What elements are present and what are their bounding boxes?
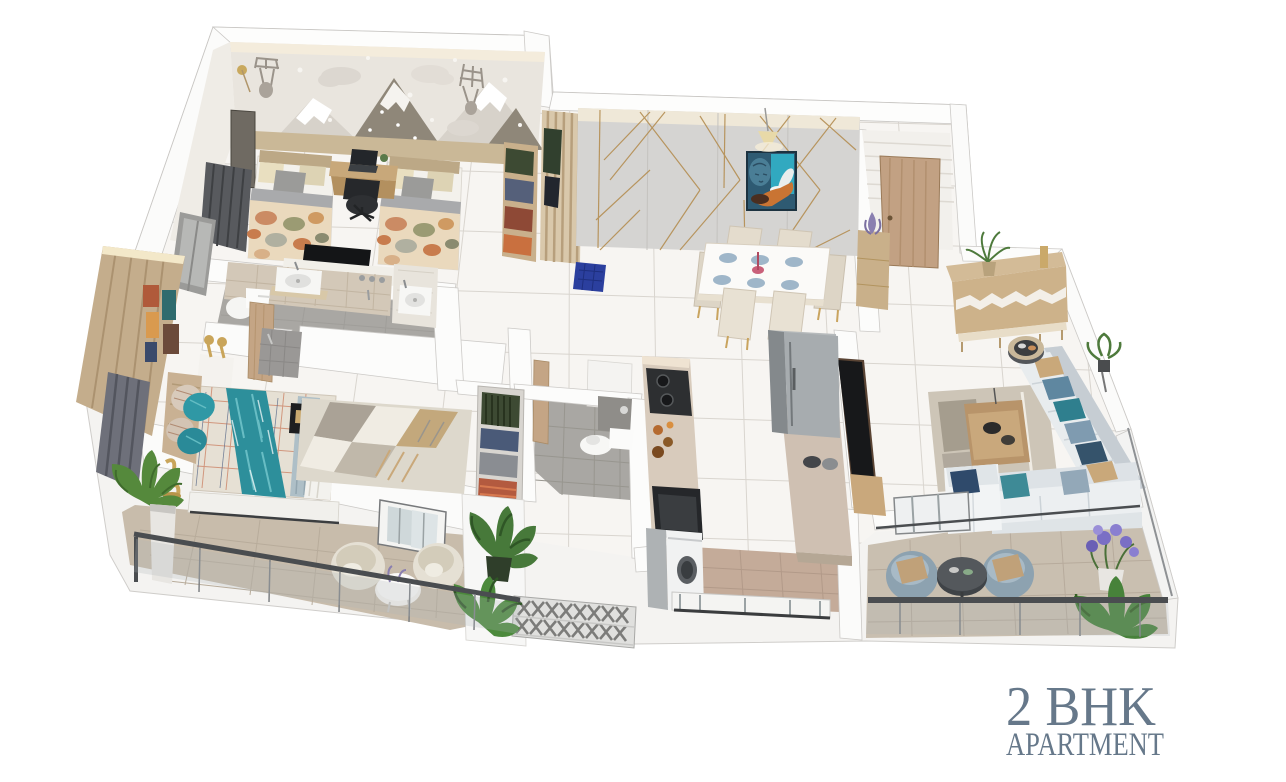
- svg-text:APARTMENT: APARTMENT: [1006, 727, 1164, 763]
